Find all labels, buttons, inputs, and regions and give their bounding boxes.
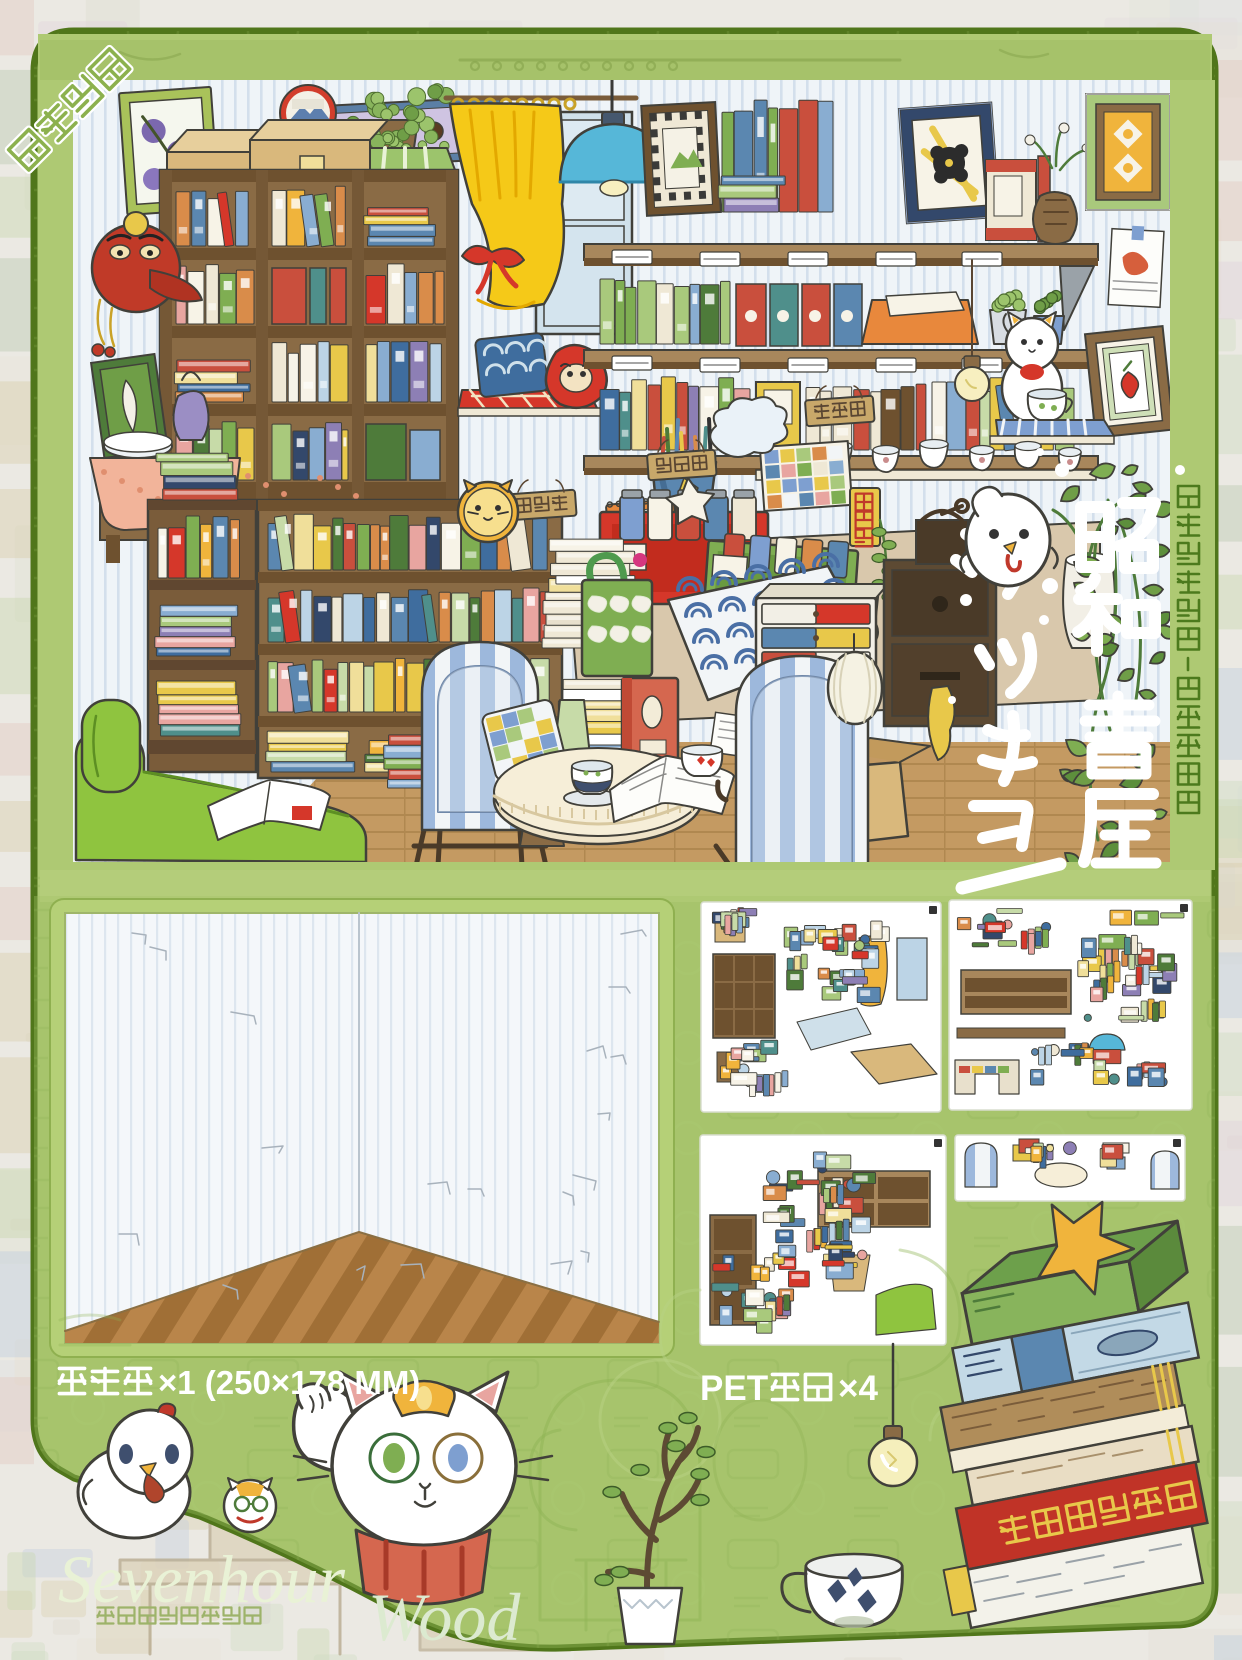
svg-text:×1 (250×178 MM): ×1 (250×178 MM)	[158, 1364, 420, 1401]
svg-text:×4: ×4	[838, 1369, 878, 1408]
svg-text:Sevenhour: Sevenhour	[58, 1541, 346, 1617]
svg-text:PET: PET	[700, 1369, 768, 1408]
svg-text:Wood: Wood	[368, 1579, 521, 1655]
